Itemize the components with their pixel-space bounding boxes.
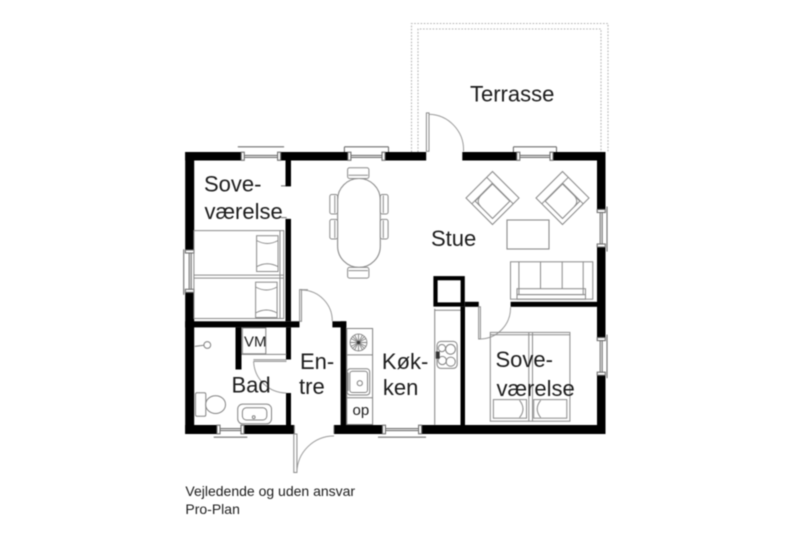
- svg-text:Bad: Bad: [232, 373, 271, 398]
- svg-text:Pro-Plan: Pro-Plan: [185, 501, 239, 517]
- svg-text:Terrasse: Terrasse: [470, 82, 554, 107]
- svg-text:Stue: Stue: [431, 226, 476, 251]
- svg-text:VM: VM: [244, 334, 267, 351]
- svg-text:En-: En-: [300, 349, 334, 374]
- svg-text:op: op: [353, 402, 370, 419]
- svg-text:tre: tre: [299, 374, 325, 399]
- svg-text:værelse: værelse: [205, 199, 283, 224]
- svg-text:ken: ken: [383, 375, 418, 400]
- svg-text:værelse: værelse: [497, 376, 575, 401]
- svg-text:Vejledende og uden ansvar: Vejledende og uden ansvar: [185, 483, 355, 499]
- svg-text:Sove-: Sove-: [204, 172, 261, 197]
- svg-text:Sove-: Sove-: [496, 347, 553, 372]
- svg-text:Køk-: Køk-: [382, 349, 428, 374]
